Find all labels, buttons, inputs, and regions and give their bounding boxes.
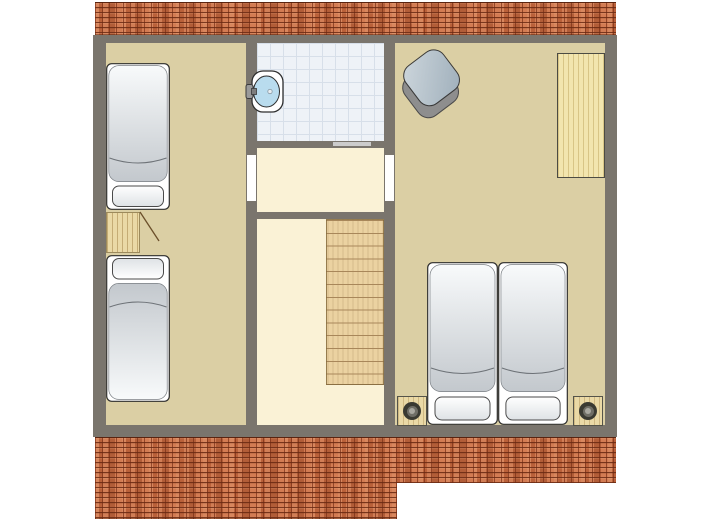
pillow xyxy=(113,259,164,280)
speaker-box-east xyxy=(573,396,603,426)
single-bed-upper xyxy=(106,63,170,210)
bathroom-sliding-door xyxy=(333,142,371,146)
tap-spout xyxy=(252,89,257,95)
basin-bowl xyxy=(254,76,280,107)
twin-bed-left xyxy=(427,262,498,425)
door-opening-right xyxy=(385,155,394,201)
pillow xyxy=(506,397,560,420)
basin-drain xyxy=(268,89,272,93)
pillow xyxy=(435,397,490,420)
speaker-icon xyxy=(403,402,421,420)
speaker-icon xyxy=(579,402,597,420)
twin-bed-right xyxy=(498,262,568,425)
wash-basin xyxy=(245,69,285,114)
mattress xyxy=(430,265,495,392)
mattress xyxy=(109,283,167,399)
staircase xyxy=(326,219,384,385)
bedside-cabinet xyxy=(106,212,140,253)
single-bed-lower xyxy=(106,255,170,402)
cabinet-door-swing-line xyxy=(138,210,162,244)
roof-brick-strip-bottom xyxy=(95,437,616,519)
door-opening-left xyxy=(247,155,256,201)
pillow xyxy=(113,186,164,207)
floor-plan-canvas xyxy=(0,0,713,519)
landing-floor xyxy=(257,148,384,212)
desk xyxy=(557,53,605,178)
roof-brick-strip-top xyxy=(95,2,616,35)
mattress xyxy=(501,265,565,392)
mattress xyxy=(109,66,167,182)
speaker-box-west xyxy=(397,396,427,426)
